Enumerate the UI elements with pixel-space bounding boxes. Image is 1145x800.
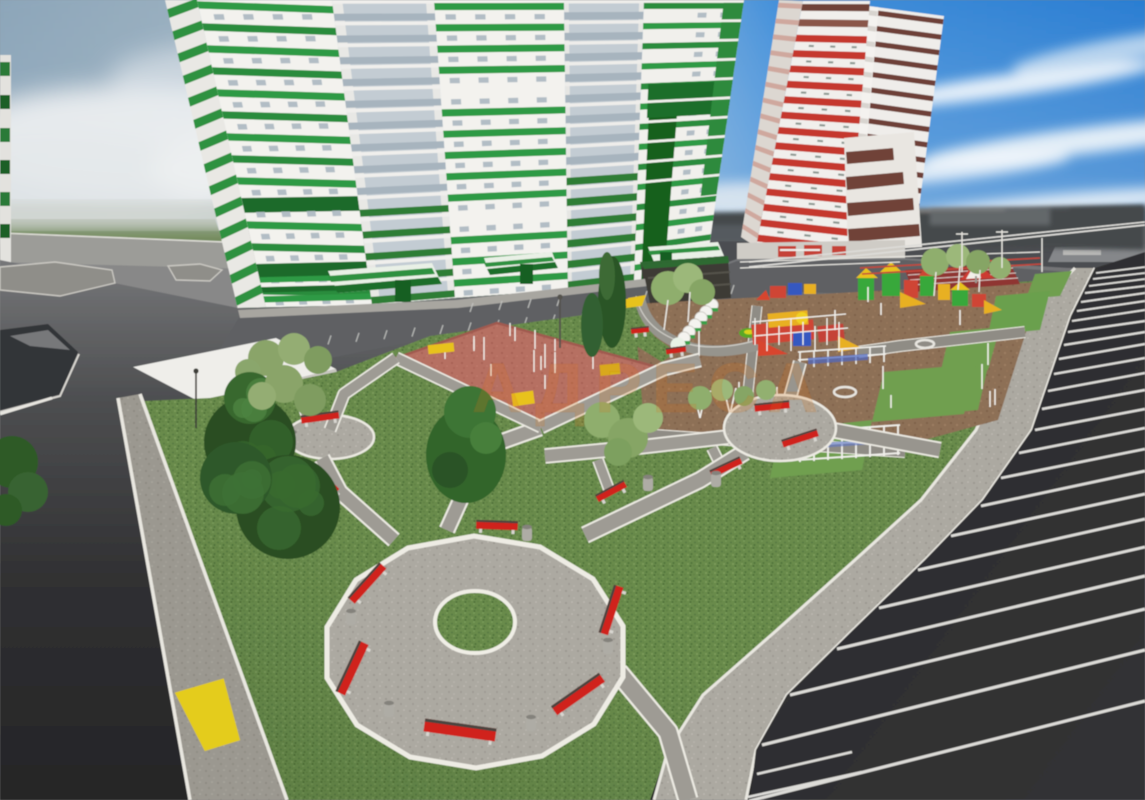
svg-text:АДРЕСА: АДРЕСА <box>472 349 828 427</box>
